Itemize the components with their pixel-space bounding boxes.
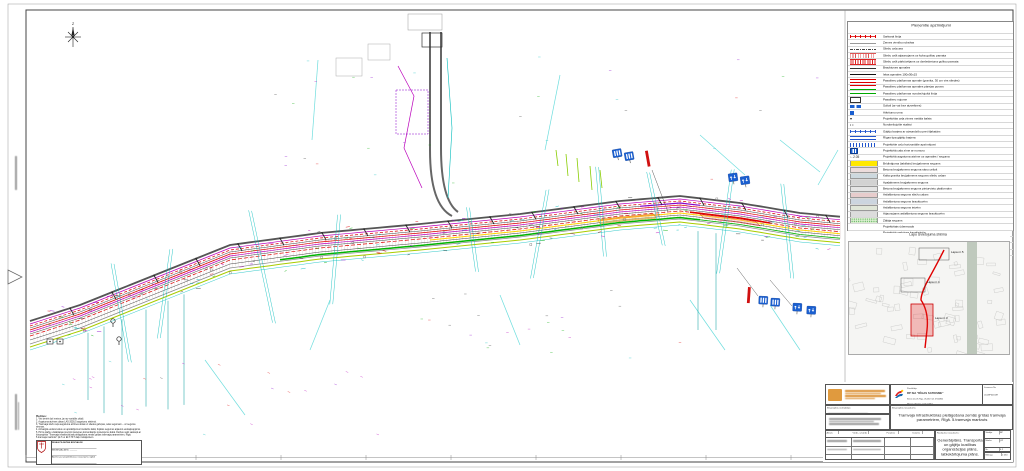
bottom-ruler (26, 455, 843, 460)
legend-item-label: Gājēju barjera ar aizsardzību pret šļaka… (883, 130, 940, 133)
legend-swatch-fill (848, 205, 883, 211)
licence-label: Licences Nr. (983, 385, 998, 389)
notes-list: 1. Visi izmēri doti metros, ja nav norād… (36, 418, 142, 439)
legend-list: Sarkanā līnijaZemes vienību robežasSliež… (848, 33, 1013, 261)
signature-col-header: Paraksts (886, 431, 899, 434)
map-sheet-label: Lapa nr.3 (935, 316, 948, 320)
utility-lines (88, 150, 716, 418)
legend-item-label: Sarkanā līnija (883, 35, 901, 38)
signature-col-header: Datums (912, 431, 923, 434)
legend-swatch-icon-sign (848, 148, 883, 154)
road-sign-icon (806, 306, 816, 317)
legend-swatch-fill-dots (848, 217, 883, 223)
sheet-number-value: 4.2 (999, 448, 1005, 452)
rigas-satiksme-logo-icon (894, 389, 904, 399)
signature-table: AmatsVārds, uzvārdsParakstsDatums (825, 430, 935, 460)
legend-item-label: Pasažieru platformas apmales pārejas pos… (883, 86, 944, 89)
legend-swatch-line-thick (848, 74, 883, 75)
legend-item-label: Sliežu ceļš atjaunojams uz koka gulšņu p… (883, 54, 946, 57)
legend-swatch-dline (848, 136, 883, 140)
legend-item-label: Soliņš (ar vai bez atzveltnes) (883, 105, 921, 108)
riga-coat-of-arms-icon (37, 441, 52, 464)
client-cell: Pasūtītājs: RP SIA "RĪGAS SATIKSME" Klei… (890, 384, 1013, 405)
note-item: 5. Pirms darbu uzsākšanas precizēt pazem… (36, 431, 142, 439)
legend-item-label: Pasažieru platformas apmale (granīta, 30… (883, 80, 960, 83)
legend-swatch-fill (848, 198, 883, 204)
road-sign-icon (612, 148, 623, 160)
mark-label: Marka (985, 439, 992, 443)
legend-swatch-dashdot (848, 49, 883, 50)
road-sign-icon (624, 151, 635, 163)
designer-label-cell: Būvprojekta izstrādātājs: (825, 405, 890, 414)
legend-swatch-fill (848, 186, 883, 192)
legend-item-label: Projektētā augstuma atzīme uz apmales / … (883, 156, 950, 159)
title-block: Būvprojekta izstrādātājs: Pasūtītājs: RP… (823, 382, 1013, 462)
legend-item-label: Norobežojošie stabiņi (883, 124, 912, 127)
licence-number: LD-MP000187 (983, 392, 998, 396)
legend-swatch-dots: • • (848, 123, 883, 127)
legend-item-label: Projektētās ceļa zīmes metāla balsts (883, 118, 932, 121)
client-address: Kleistu iela 28, Rīga, LV-1067, tālr. 67… (907, 398, 945, 400)
margin-label-left-upper (14, 150, 18, 190)
notes-block: Piezīmes: 1. Visi izmēri doti metros, ja… (36, 415, 142, 439)
legend-item-label: Projektētie ceļu horizontālie apzīmējumi (883, 143, 936, 146)
legend-swatch-line (848, 68, 883, 69)
sheet-layout-title: Lapu izvietojuma shēma (846, 233, 1010, 237)
project-title: Tramvaja infrastruktūras pielāgošana zem… (891, 413, 1012, 422)
legend-swatch-fill (848, 179, 883, 185)
sheet-number-label: Nr. (985, 448, 992, 452)
legend-item-label: Asfaltbetona segums sliežu ceļam (883, 194, 928, 197)
client-label: Pasūtītājs: (907, 387, 945, 390)
branch-road (336, 14, 458, 216)
signature-col-header: Vārds, uzvārds (852, 431, 869, 434)
stamp-row: BŪVATĻAUJA Nr. ______ (52, 448, 97, 451)
drawing-title: Ģenerālplāns. Transporta un gājēju kustī… (936, 438, 983, 456)
legend-panel: Pieņemtie apzīmējumi Sarkanā līnijaZemes… (847, 21, 1014, 231)
sign-leaders (652, 170, 792, 306)
stage-value: BP (999, 431, 1004, 435)
approval-stamp: RĪGAS PILSĒTAS BŪVVALDE BŪVATĻAUJA Nr. _… (36, 440, 142, 465)
drawing-sheet: Z Pieņemtie apzīmējumi Sarkanā līnijaZem… (0, 0, 1024, 471)
stamp-content: RĪGAS PILSĒTAS BŪVVALDE BŪVATĻAUJA Nr. _… (52, 441, 141, 464)
legend-item-label: Projektētais ūdensvads (883, 225, 914, 228)
legend-swatch-blue-hatch (848, 143, 883, 147)
signature-row (826, 438, 934, 447)
legend-swatch-fill (848, 173, 883, 179)
drawing-label: Rasējuma nosaukums: (936, 431, 960, 434)
legend-item-label: Ielas apmales 100x30x15 (883, 73, 917, 76)
signature-col-header: Amats (826, 431, 839, 434)
legend-item-label: Sliežu ceļš pārbūvējams uz dzelzsbetona … (883, 61, 958, 64)
stamp-row: Atzīme par projektēšanas nosacījumu izpi… (52, 455, 97, 458)
legend-swatch-dline (848, 79, 883, 83)
legend-item-label: Atkritumu urna (883, 111, 903, 114)
sheet-layout-graphic: Lapa nr.5Lapa nr.4Lapa nr.3 (849, 242, 1009, 354)
legend-swatch-icon-rect (848, 97, 883, 102)
legend-item-label: Projektētā ceļa zīme ar numuru (883, 149, 925, 152)
legend-swatch-icon-bench (848, 105, 883, 109)
legend-swatch-dline (848, 85, 883, 89)
legend-swatch-line (848, 43, 883, 44)
designer-logo-cell (825, 384, 890, 405)
legend-swatch-line-ticks (848, 35, 883, 38)
legend-item-label: Pasažieru platformas norobežojošā līnija (883, 92, 937, 95)
legend-swatch-line (848, 93, 883, 94)
stage-label: Stadija (985, 431, 992, 435)
legend-item-label: Brauktuves apmales (883, 67, 910, 70)
legend-item-label: Betona bruģakmens seguma sānu celiņš (883, 168, 937, 171)
legend-swatch-hatch (848, 53, 883, 59)
legend-swatch-symbol: ▾ (848, 117, 883, 121)
designer-label: Būvprojekta izstrādātājs: (826, 406, 858, 409)
legend-swatch-icon-bin (848, 111, 883, 115)
legend-item-label: Rīgas tipa gājēju barjera (883, 137, 916, 140)
legend-item-label: Apaļakmens bruģakmens segums (883, 181, 928, 184)
legend-item-label: Kalta granīta bruģakmens segums sliežu c… (883, 175, 946, 178)
legend-item-label: Asfaltbetona segums brauktuvēm (883, 200, 928, 203)
road-sign-icon (792, 303, 802, 314)
sheet-layout-map: Lapa nr.5Lapa nr.4Lapa nr.3 (848, 241, 1010, 355)
map-sheet-label: Lapa nr.5 (951, 250, 964, 254)
legend-swatch-mark: ∟2.05 (848, 155, 883, 159)
drawing-title-cell: Rasējuma nosaukums: Ģenerālplāns. Transp… (935, 430, 984, 460)
fold-mark (8, 270, 22, 284)
sheet-layout-panel: Lapu izvietojuma shēma Lapa nr.5Lapa nr.… (846, 233, 1010, 357)
signature-row (826, 447, 934, 456)
designer-logo-icon (828, 389, 842, 401)
annotation-specks (46, 57, 830, 435)
legend-swatch-fill (848, 192, 883, 198)
stage-table: StadijaBP MarkaĢP Nr.4.2 (984, 430, 1011, 452)
mark-value: ĢP (999, 439, 1005, 443)
project-title-cell: Būvprojekta nosaukums: Tramvaja infrastr… (890, 405, 1013, 430)
legend-swatch-fill (848, 160, 883, 166)
legend-item-label: Brīdinājuma (taktilais) bruģakmens segum… (883, 162, 941, 165)
legend-item-label: Zemes vienību robežas (883, 42, 914, 45)
scale-value: 1:250 (1001, 453, 1008, 456)
designer-cert-cell (825, 414, 890, 430)
legend-swatch-hatch-dense (848, 59, 883, 65)
project-label: Būvprojekta nosaukums: (891, 406, 952, 409)
legend-swatch-dashed (848, 227, 883, 228)
legend-item-label: Zālāja segums (883, 219, 903, 222)
legend-item-label: Atjaunojams asfaltbetona segums brauktuv… (883, 213, 945, 216)
margin-label-left-lower (14, 390, 20, 430)
legend-title: Pieņemtie apzīmējumi (848, 22, 1013, 28)
legend-swatch-fill (848, 211, 883, 217)
north-label: Z (72, 22, 75, 26)
road-sign-icon (758, 296, 768, 307)
road-sign-icon (740, 176, 750, 188)
scale-label: Mērogs (985, 453, 993, 456)
legend-item-label: Asfaltbetona segums ietvēm (883, 206, 921, 209)
legend-item-label: Betona bruģakmens segums pieturvietu pla… (883, 187, 952, 190)
legend-item-label: Pasažieru nojume (883, 99, 907, 102)
legend-item-label: Sliežu ceļa ass (883, 48, 903, 51)
signature-row (826, 455, 934, 460)
red-restriction-bar (747, 287, 751, 303)
red-restriction-bar (645, 151, 651, 167)
client-name: RP SIA "RĪGAS SATIKSME" (907, 392, 945, 395)
legend-swatch-fill (848, 167, 883, 173)
map-sheet-label: Lapa nr.4 (927, 280, 940, 284)
stamp-row: Atzīme par būvdarbu uzsākšanas nosacījum… (52, 463, 97, 465)
scale-cell: Mērogs 1:250 (984, 452, 1011, 460)
stamp-org: RĪGAS PILSĒTAS BŪVVALDE (52, 441, 97, 444)
north-compass: Z (65, 22, 81, 47)
legend-swatch-line-ticks (848, 130, 883, 133)
